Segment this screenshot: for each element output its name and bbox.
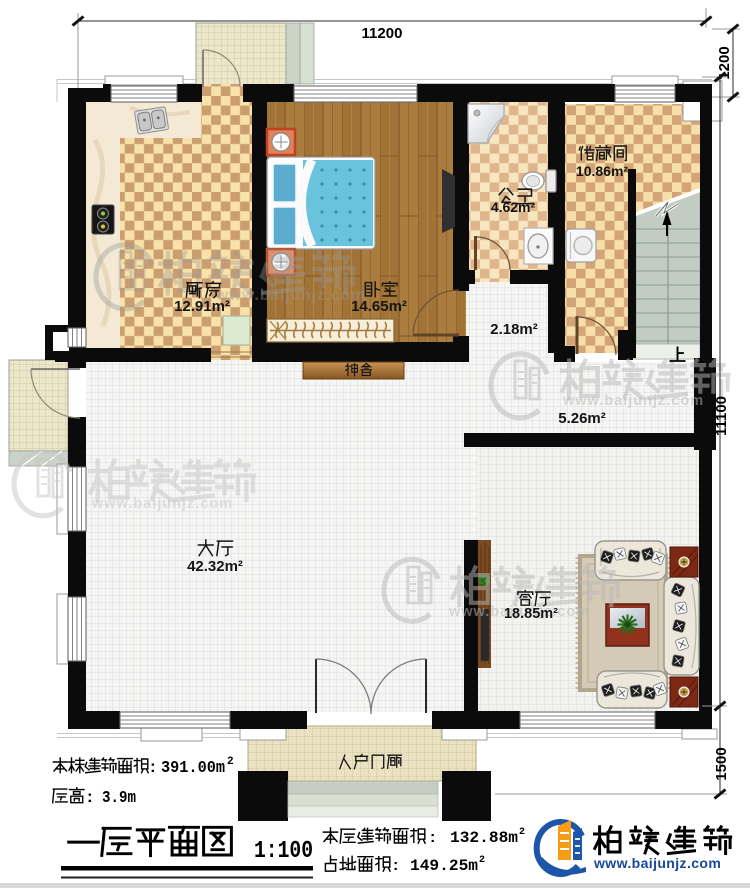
svg-text:www.baijunjz.com: www.baijunjz.com [91,496,233,512]
svg-text:11100: 11100 [713,396,730,436]
svg-text:1:100: 1:100 [254,838,313,865]
svg-text:2: 2 [227,756,234,768]
svg-text:2: 2 [519,827,525,838]
svg-text:18.85m²: 18.85m² [504,606,558,622]
svg-text::: : [430,829,435,846]
svg-text::: : [87,787,93,806]
svg-text:1500: 1500 [713,747,730,780]
svg-text::: : [150,757,156,776]
svg-text:11200: 11200 [362,25,403,42]
svg-text::: : [393,857,398,874]
svg-text:10.86m²: 10.86m² [576,163,628,179]
svg-text:132.88m: 132.88m [450,829,518,847]
svg-text:3.9m: 3.9m [102,789,136,808]
svg-text:www.baijunjz.com: www.baijunjz.com [562,393,704,409]
svg-text:4.62m²: 4.62m² [491,199,536,215]
svg-text:www.baijunjz.com: www.baijunjz.com [593,855,721,871]
svg-text:12.91m²: 12.91m² [174,298,230,315]
svg-text:2: 2 [479,855,485,866]
svg-text:5.26m²: 5.26m² [558,410,606,427]
svg-text:42.32m²: 42.32m² [187,558,243,575]
svg-text:14.65m²: 14.65m² [351,298,407,315]
svg-text:149.25m: 149.25m [410,857,478,875]
svg-text:2.18m²: 2.18m² [490,321,538,338]
svg-text:391.00m: 391.00m [161,759,225,778]
svg-text:www.baijunjz.com: www.baijunjz.com [215,287,366,304]
